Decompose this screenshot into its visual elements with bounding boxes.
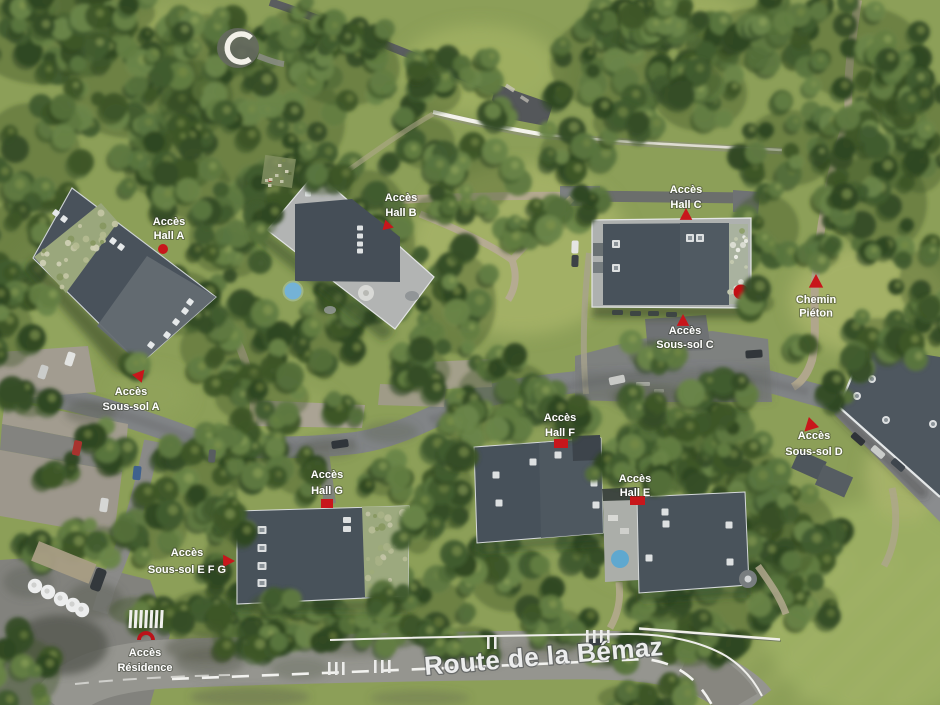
svg-text:Accès: Accès [153, 216, 185, 228]
svg-text:Hall G: Hall G [311, 485, 343, 497]
svg-text:Hall A: Hall A [154, 230, 185, 242]
svg-text:Accès: Accès [619, 473, 651, 485]
svg-text:Piéton: Piéton [799, 308, 833, 320]
svg-text:Accès: Accès [670, 184, 702, 196]
svg-text:Accès: Accès [798, 430, 830, 442]
svg-text:Hall B: Hall B [385, 207, 416, 219]
svg-text:Accès: Accès [544, 412, 576, 424]
svg-text:Accès: Accès [171, 547, 203, 559]
svg-text:Hall E: Hall E [620, 487, 651, 499]
svg-text:Sous-sol E F G: Sous-sol E F G [148, 564, 226, 576]
svg-text:Sous-sol A: Sous-sol A [102, 401, 159, 413]
svg-text:Accès: Accès [385, 192, 417, 204]
svg-text:Sous-sol D: Sous-sol D [785, 446, 843, 458]
svg-text:Hall C: Hall C [670, 199, 701, 211]
svg-text:Accès: Accès [311, 469, 343, 481]
svg-text:Accès: Accès [115, 386, 147, 398]
svg-text:Sous-sol C: Sous-sol C [656, 339, 714, 351]
svg-text:Hall F: Hall F [545, 427, 575, 439]
svg-text:Résidence: Résidence [117, 662, 172, 674]
svg-text:Chemin: Chemin [796, 294, 837, 306]
svg-text:Accès: Accès [129, 647, 161, 659]
svg-text:Accès: Accès [669, 325, 701, 337]
